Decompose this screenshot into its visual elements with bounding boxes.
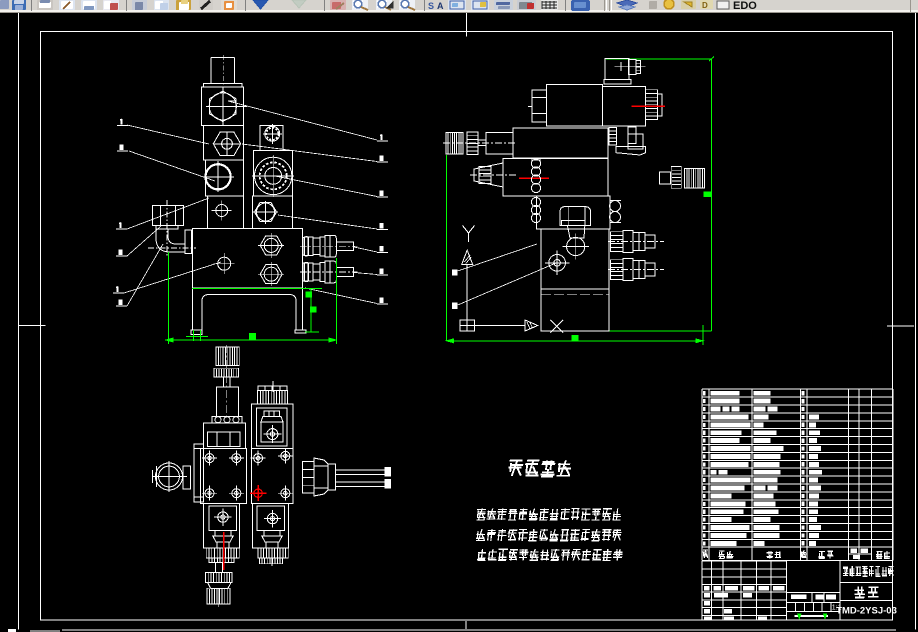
svg-text:TMD-2YSJ-03: TMD-2YSJ-03 <box>836 606 897 617</box>
svg-text:A: A <box>437 1 444 11</box>
svg-text:S: S <box>428 1 434 11</box>
svg-text:EDO: EDO <box>733 0 757 12</box>
svg-text:D: D <box>702 1 708 10</box>
